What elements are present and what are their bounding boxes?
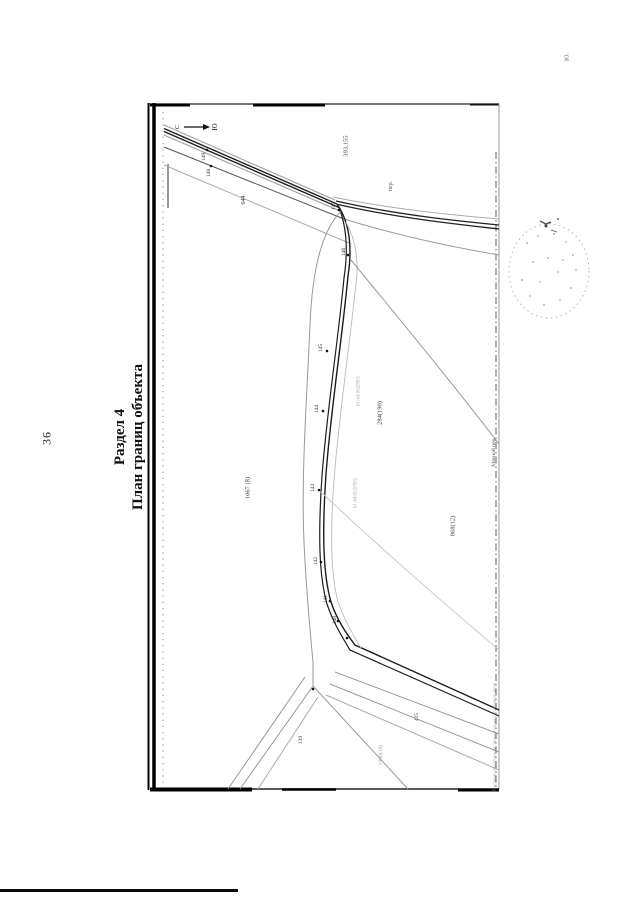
road-lines-southwest: [228, 677, 318, 789]
road-lines-southeast: [313, 672, 499, 789]
scanned-document-page: 36 Раздел 4 План границ объекта Ю. С Ю У…: [0, 0, 640, 905]
road-edges-south: [303, 212, 361, 687]
stamp-seal: [509, 218, 589, 318]
object-boundary-line: [164, 129, 499, 717]
boundary-plan-drawing: [0, 0, 640, 905]
road-lines-east: [333, 197, 499, 255]
north-arrow: [184, 124, 210, 130]
road-lines-northwest: [164, 125, 349, 243]
parcel-division-lines: [321, 260, 499, 650]
